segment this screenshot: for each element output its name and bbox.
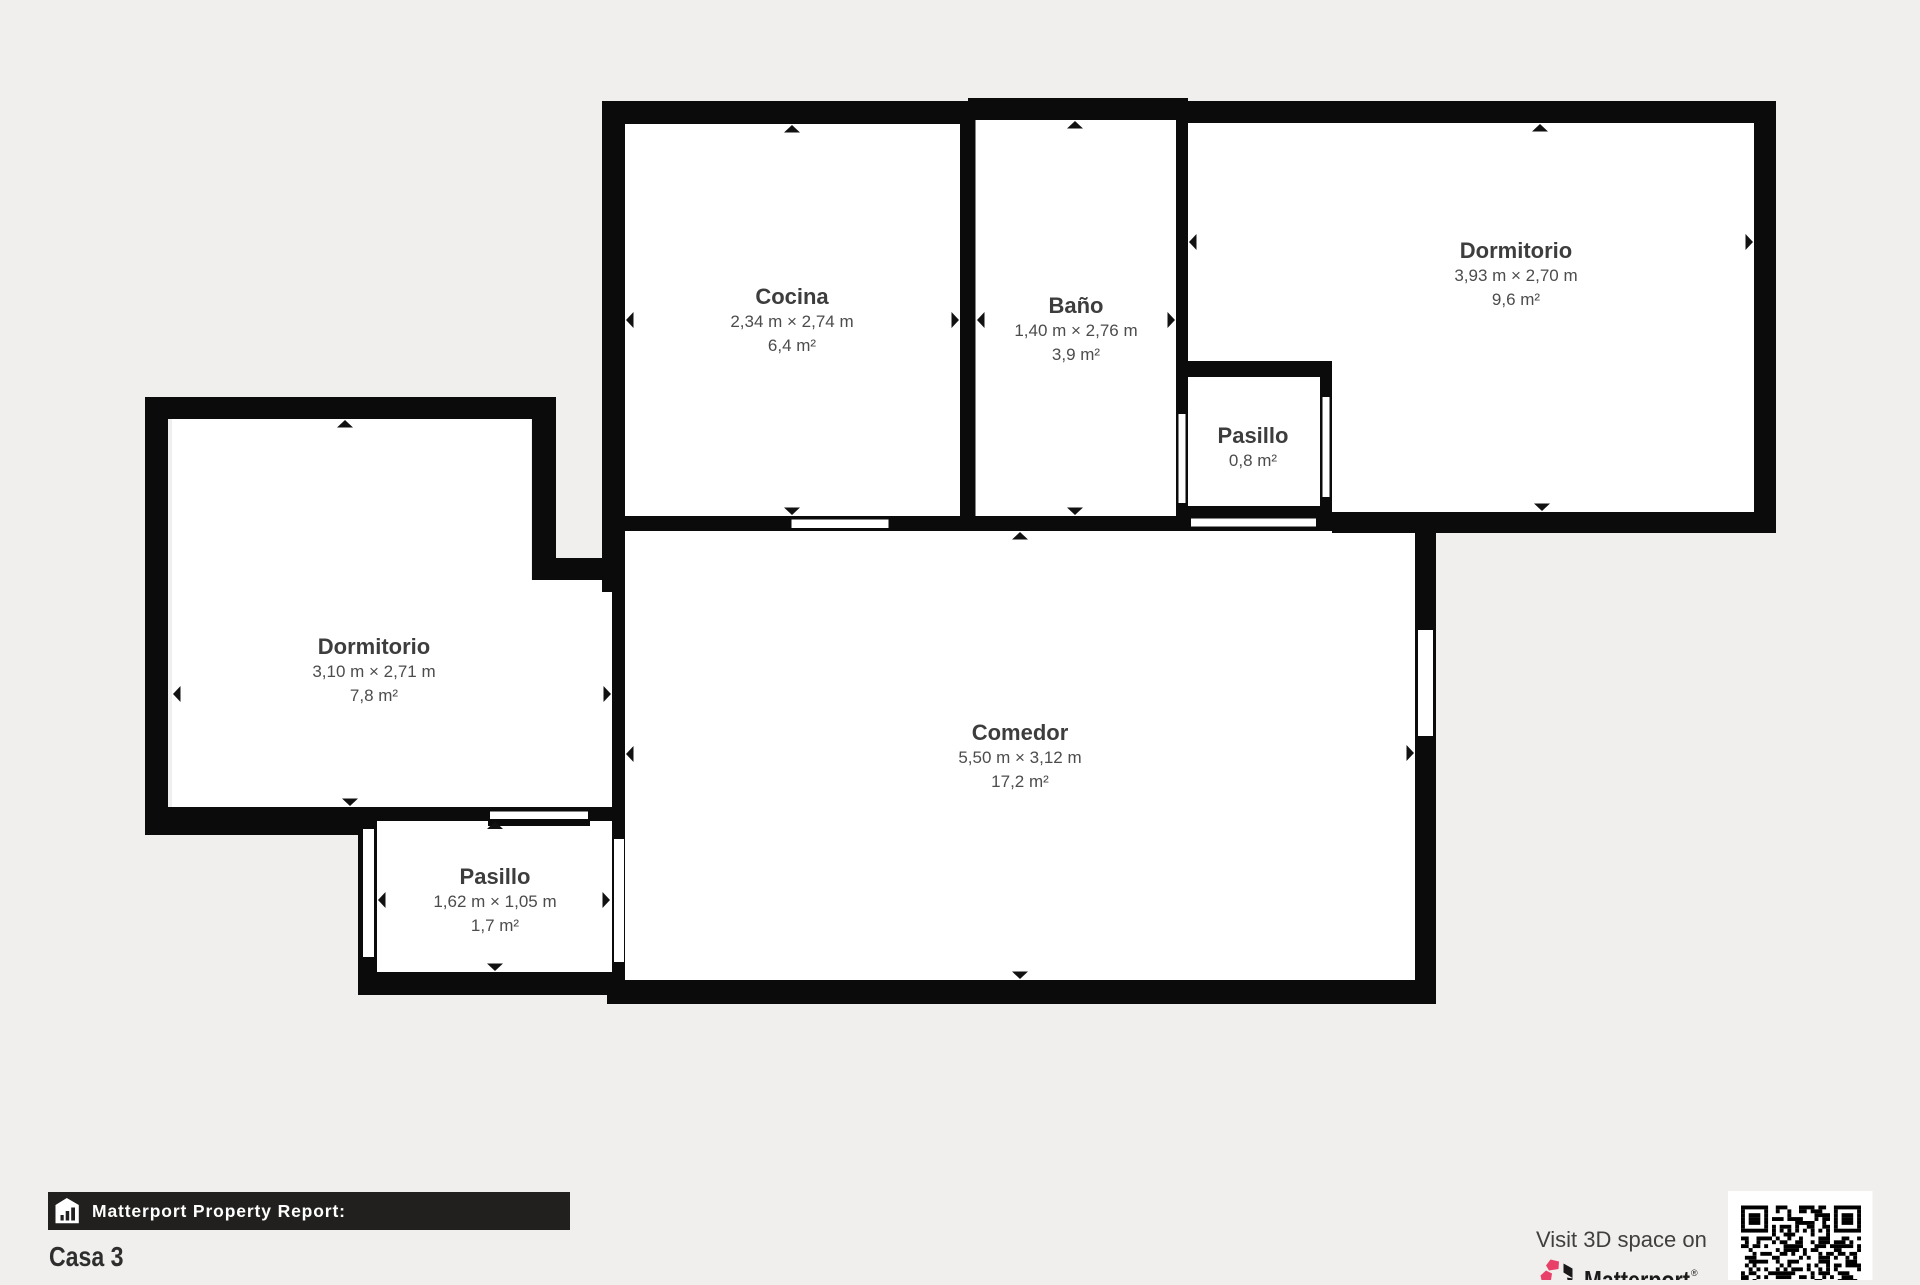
svg-text:Pasillo: Pasillo xyxy=(460,864,531,889)
svg-text:2,34 m × 2,74 m: 2,34 m × 2,74 m xyxy=(730,312,853,331)
svg-text:3,93 m × 2,70 m: 3,93 m × 2,70 m xyxy=(1454,266,1577,285)
svg-text:Matterport Property Report:: Matterport Property Report: xyxy=(92,1201,345,1221)
svg-text:1,40 m × 2,76 m: 1,40 m × 2,76 m xyxy=(1014,321,1137,340)
svg-text:Visit 3D space on: Visit 3D space on xyxy=(1536,1227,1707,1252)
svg-text:Matterport: Matterport xyxy=(1584,1265,1690,1280)
svg-text:Baño: Baño xyxy=(1049,293,1104,318)
svg-text:0,8 m²: 0,8 m² xyxy=(1229,451,1278,470)
svg-text:Pasillo: Pasillo xyxy=(1218,423,1289,448)
svg-text:Cocina: Cocina xyxy=(755,284,829,309)
svg-text:®: ® xyxy=(1691,1268,1698,1278)
svg-text:Casa 3: Casa 3 xyxy=(49,1241,124,1272)
svg-text:Dormitorio: Dormitorio xyxy=(1460,238,1572,263)
svg-text:3,9 m²: 3,9 m² xyxy=(1052,345,1101,364)
svg-text:3,10 m × 2,71 m: 3,10 m × 2,71 m xyxy=(312,662,435,681)
svg-text:9,6 m²: 9,6 m² xyxy=(1492,290,1541,309)
svg-text:1,62 m × 1,05 m: 1,62 m × 1,05 m xyxy=(433,892,556,911)
svg-text:17,2 m²: 17,2 m² xyxy=(991,772,1049,791)
svg-text:6,4 m²: 6,4 m² xyxy=(768,336,817,355)
svg-text:1,7 m²: 1,7 m² xyxy=(471,916,520,935)
svg-text:Comedor: Comedor xyxy=(972,720,1069,745)
svg-text:5,50 m × 3,12 m: 5,50 m × 3,12 m xyxy=(958,748,1081,767)
svg-text:Dormitorio: Dormitorio xyxy=(318,634,430,659)
svg-text:7,8 m²: 7,8 m² xyxy=(350,686,399,705)
